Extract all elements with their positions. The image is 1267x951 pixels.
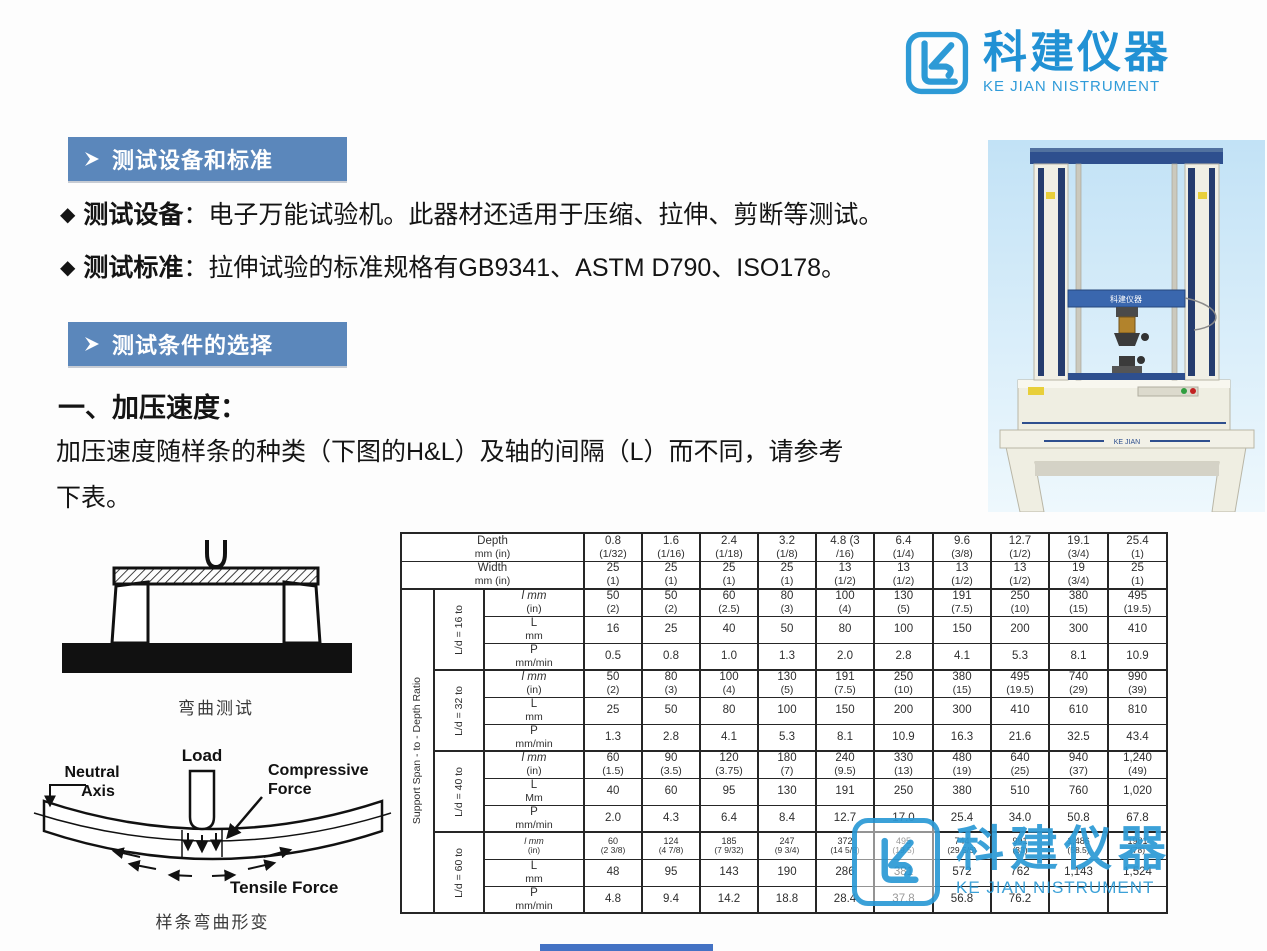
table-cell: 60 xyxy=(642,778,700,805)
table-cell: 1,020 xyxy=(1108,778,1167,805)
table-header-cell: Depthmm (in) xyxy=(401,533,584,561)
table-group-label: L/d = 60 to xyxy=(434,832,484,913)
table-cell: 80 xyxy=(700,697,758,724)
table-cell: 4.1 xyxy=(700,724,758,751)
table-header-cell: 13(1/2) xyxy=(816,561,874,589)
table-header-cell: 13(1/2) xyxy=(933,561,991,589)
table-cell: 32.5 xyxy=(1049,724,1108,751)
svg-text:Axis: Axis xyxy=(81,783,115,800)
bend-test-diagram: 弯曲测试 xyxy=(40,538,392,719)
table-cell: 1.3 xyxy=(758,643,816,670)
table-cell: 191(7.5) xyxy=(816,670,874,697)
table-row-label: l mm(in) xyxy=(484,589,584,616)
table-cell: 8.1 xyxy=(816,724,874,751)
table-cell: 247(9 3/4) xyxy=(758,832,816,859)
banner-equipment: 测试设备和标准 xyxy=(68,137,347,181)
table-header-cell: 9.6(3/8) xyxy=(933,533,991,561)
table-cell: 40 xyxy=(584,778,642,805)
table-cell: 410 xyxy=(991,697,1049,724)
table-cell: 495(19.5) xyxy=(991,670,1049,697)
table-header-cell: 6.4(1/4) xyxy=(874,533,933,561)
svg-text:Force: Force xyxy=(268,781,312,798)
table-cell: 124(4 7/8) xyxy=(642,832,700,859)
bullet-standard-text: ：拉伸试验的标准规格有GB9341、ASTM D790、ISO178。 xyxy=(183,254,846,282)
bullet-equipment-text: ：电子万能试验机。此器材还适用于压缩、拉伸、剪断等测试。 xyxy=(183,201,883,229)
table-cell: 300 xyxy=(1049,616,1108,643)
table-cell: 1.0 xyxy=(700,643,758,670)
table-cell: 150 xyxy=(816,697,874,724)
table-header-cell: 4.8 (3/16) xyxy=(816,533,874,561)
table-cell: 191(7.5) xyxy=(933,589,991,616)
table-cell: 18.8 xyxy=(758,886,816,913)
table-cell: 250(10) xyxy=(991,589,1049,616)
table-cell: 130(5) xyxy=(874,589,933,616)
table-cell: 190 xyxy=(758,859,816,886)
table-cell: 1,240(49) xyxy=(1108,751,1167,778)
table-cell: 16.3 xyxy=(933,724,991,751)
table-cell: 80(3) xyxy=(642,670,700,697)
table-cell: 25 xyxy=(642,616,700,643)
table-cell: 10.9 xyxy=(874,724,933,751)
testing-machine-image: KE JIAN 科建仪器 xyxy=(988,140,1265,512)
svg-text:KE JIAN: KE JIAN xyxy=(1114,439,1140,446)
arrow-bullet-icon xyxy=(82,334,102,354)
watermark-subtitle: KE JIAN NISTRUMENT xyxy=(956,878,1172,898)
table-cell: 180(7) xyxy=(758,751,816,778)
table-cell: 100(4) xyxy=(700,670,758,697)
table-cell: 6.4 xyxy=(700,805,758,832)
brand-title: 科建仪器 xyxy=(983,30,1171,76)
brand-subtitle: KE JIAN NISTRUMENT xyxy=(983,78,1171,95)
table-cell: 5.3 xyxy=(758,724,816,751)
diamond-icon: ◆ xyxy=(60,204,75,226)
table-row-label: l mm(in) xyxy=(484,751,584,778)
table-cell: 8.1 xyxy=(1049,643,1108,670)
table-cell: 250 xyxy=(874,778,933,805)
neutral-axis-label: Neutral xyxy=(64,764,119,781)
table-cell: 480(19) xyxy=(933,751,991,778)
table-header-cell: 25.4(1) xyxy=(1108,533,1167,561)
arrow-bullet-icon xyxy=(82,149,102,169)
watermark-logo-icon xyxy=(852,818,940,906)
table-cell: 990(39) xyxy=(1108,670,1167,697)
table-cell: 120(3.75) xyxy=(700,751,758,778)
table-row-label: Pmm/min xyxy=(484,886,584,913)
table-cell: 50(2) xyxy=(642,589,700,616)
paragraph-line2: 下表。 xyxy=(56,478,131,514)
table-cell: 43.4 xyxy=(1108,724,1167,751)
table-cell: 50 xyxy=(758,616,816,643)
compressive-force-label: Compressive xyxy=(268,762,369,779)
bullet-standard-label: 测试标准 xyxy=(83,254,183,282)
table-row-label: Pmm/min xyxy=(484,805,584,832)
table-cell: 760 xyxy=(1049,778,1108,805)
table-cell: 240(9.5) xyxy=(816,751,874,778)
table-cell: 2.0 xyxy=(584,805,642,832)
heading-pressure-speed: 一、加压速度： xyxy=(58,386,247,425)
table-header-cell: 13(1/2) xyxy=(874,561,933,589)
table-cell: 100 xyxy=(758,697,816,724)
slide: 科建仪器 KE JIAN NISTRUMENT 测试设备和标准 ◆测试设备：电子… xyxy=(0,0,1267,951)
table-header-cell: 1.6(1/16) xyxy=(642,533,700,561)
diamond-icon: ◆ xyxy=(60,257,75,279)
table-cell: 940(37) xyxy=(1049,751,1108,778)
table-row-label: Pmm/min xyxy=(484,724,584,751)
table-cell: 21.6 xyxy=(991,724,1049,751)
table-cell: 8.4 xyxy=(758,805,816,832)
table-row-label: l mm(in) xyxy=(484,670,584,697)
table-cell: 200 xyxy=(874,697,933,724)
table-cell: 2.8 xyxy=(642,724,700,751)
table-header-cell: 2.4(1/18) xyxy=(700,533,758,561)
watermark-logo: 科建仪器 KE JIAN NISTRUMENT xyxy=(852,818,1172,906)
table-cell: 410 xyxy=(1108,616,1167,643)
table-row-label: Pmm/min xyxy=(484,643,584,670)
load-label: Load xyxy=(182,746,223,765)
bullet-equipment-label: 测试设备 xyxy=(83,201,183,229)
table-cell: 191 xyxy=(816,778,874,805)
table-row-label: Lmm xyxy=(484,697,584,724)
table-cell: 5.3 xyxy=(991,643,1049,670)
brand-logo: 科建仪器 KE JIAN NISTRUMENT xyxy=(905,30,1171,95)
table-header-cell: 0.8(1/32) xyxy=(584,533,642,561)
table-cell: 10.9 xyxy=(1108,643,1167,670)
table-row-label: LMm xyxy=(484,778,584,805)
table-cell: 200 xyxy=(991,616,1049,643)
table-cell: 4.1 xyxy=(933,643,991,670)
table-cell: 2.8 xyxy=(874,643,933,670)
table-cell: 640(25) xyxy=(991,751,1049,778)
table-cell: 16 xyxy=(584,616,642,643)
table-row-label: Lmm xyxy=(484,616,584,643)
paragraph-line1: 加压速度随样条的种类（下图的H&L）及轴的间隔（L）而不同，请参考 xyxy=(56,432,844,468)
banner-conditions: 测试条件的选择 xyxy=(68,322,347,366)
table-cell: 610 xyxy=(1049,697,1108,724)
table-group-label: L/d = 32 to xyxy=(434,670,484,751)
table-cell: 380 xyxy=(933,778,991,805)
table-header-cell: 25(1) xyxy=(758,561,816,589)
table-header-cell: 13(1/2) xyxy=(991,561,1049,589)
table-cell: 380(15) xyxy=(933,670,991,697)
table-header-cell: Widthmm (in) xyxy=(401,561,584,589)
table-header-cell: 25(1) xyxy=(584,561,642,589)
table-cell: 40 xyxy=(700,616,758,643)
table-row-label: l mm(in) xyxy=(484,832,584,859)
table-cell: 2.0 xyxy=(816,643,874,670)
table-cell: 60(2 3/8) xyxy=(584,832,642,859)
brand-logo-icon xyxy=(905,31,969,95)
table-cell: 50(2) xyxy=(584,670,642,697)
watermark-title: 科建仪器 xyxy=(956,826,1172,874)
table-cell: 4.3 xyxy=(642,805,700,832)
table-cell: 810 xyxy=(1108,697,1167,724)
table-cell: 250(10) xyxy=(874,670,933,697)
banner-equipment-label: 测试设备和标准 xyxy=(112,143,273,175)
table-cell: 1.3 xyxy=(584,724,642,751)
table-cell: 50 xyxy=(642,697,700,724)
tensile-force-label: Tensile Force xyxy=(230,878,338,897)
table-cell: 80 xyxy=(816,616,874,643)
bend-test-caption: 弯曲测试 xyxy=(40,694,392,719)
table-header-cell: 25(1) xyxy=(700,561,758,589)
bottom-strip xyxy=(540,944,713,951)
table-header-cell: 25(1) xyxy=(1108,561,1167,589)
table-cell: 510 xyxy=(991,778,1049,805)
table-cell: 130(5) xyxy=(758,670,816,697)
bullet-standard: ◆测试标准：拉伸试验的标准规格有GB9341、ASTM D790、ISO178。 xyxy=(60,252,846,285)
table-group-label: L/d = 40 to xyxy=(434,751,484,832)
table-cell: 380(15) xyxy=(1049,589,1108,616)
table-cell: 143 xyxy=(700,859,758,886)
table-cell: 495(19.5) xyxy=(1108,589,1167,616)
table-header-cell: 3.2(1/8) xyxy=(758,533,816,561)
table-cell: 0.5 xyxy=(584,643,642,670)
table-cell: 48 xyxy=(584,859,642,886)
table-cell: 740(29) xyxy=(1049,670,1108,697)
table-row-label: Lmm xyxy=(484,859,584,886)
table-cell: 60(1.5) xyxy=(584,751,642,778)
table-cell: 60(2.5) xyxy=(700,589,758,616)
table-cell: 300 xyxy=(933,697,991,724)
svg-text:科建仪器: 科建仪器 xyxy=(1110,294,1142,304)
table-header-cell: 12.7(1/2) xyxy=(991,533,1049,561)
table-cell: 150 xyxy=(933,616,991,643)
table-cell: 80(3) xyxy=(758,589,816,616)
table-cell: 14.2 xyxy=(700,886,758,913)
table-cell: 25 xyxy=(584,697,642,724)
table-group-label: L/d = 16 to xyxy=(434,589,484,670)
table-cell: 330(13) xyxy=(874,751,933,778)
table-header-cell: 19(3/4) xyxy=(1049,561,1108,589)
table-cell: 0.8 xyxy=(642,643,700,670)
table-cell: 90(3.5) xyxy=(642,751,700,778)
table-cell: 50(2) xyxy=(584,589,642,616)
table-cell: 4.8 xyxy=(584,886,642,913)
deformation-diagram: Load Compressive Force Neutral Axis Tens… xyxy=(30,745,395,933)
table-cell: 100 xyxy=(874,616,933,643)
table-outer-label: Support Span - to - Depth Ratio xyxy=(401,589,434,913)
table-cell: 95 xyxy=(642,859,700,886)
table-cell: 130 xyxy=(758,778,816,805)
table-cell: 9.4 xyxy=(642,886,700,913)
bullet-equipment: ◆测试设备：电子万能试验机。此器材还适用于压缩、拉伸、剪断等测试。 xyxy=(60,199,883,232)
table-cell: 100(4) xyxy=(816,589,874,616)
deformation-caption: 样条弯曲形变 xyxy=(30,908,395,933)
banner-conditions-label: 测试条件的选择 xyxy=(112,328,273,360)
table-cell: 95 xyxy=(700,778,758,805)
table-cell: 185(7 9/32) xyxy=(700,832,758,859)
table-header-cell: 25(1) xyxy=(642,561,700,589)
table-header-cell: 19.1(3/4) xyxy=(1049,533,1108,561)
